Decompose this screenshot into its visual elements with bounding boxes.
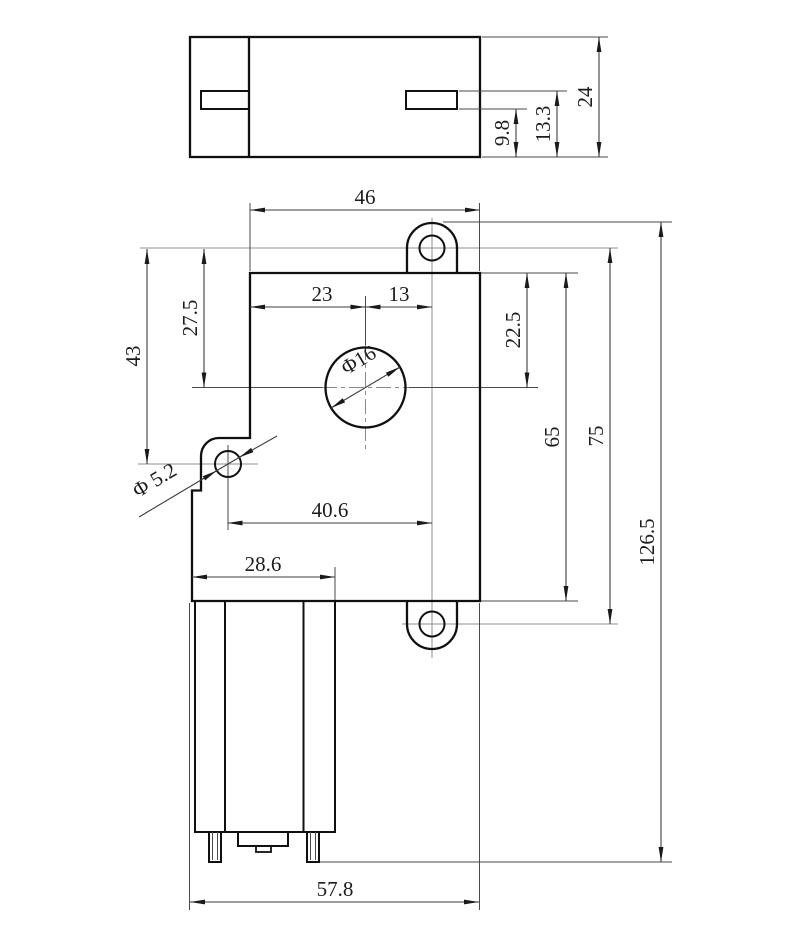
- dim-left-ear-offset-label: 43: [121, 346, 145, 367]
- dim-shaft-offset-right-label: 22.5: [501, 312, 525, 349]
- background: [0, 0, 800, 950]
- dim-body-width-label: 46: [355, 185, 376, 209]
- dim-shaft-offset-left-label: 23: [312, 282, 333, 306]
- drawing-canvas: 9.8 13.3 24: [0, 0, 800, 950]
- dim-slot-bottom-label: 9.8: [490, 120, 514, 146]
- dim-shaft-to-ear-label: 13: [389, 282, 410, 306]
- dim-ear-span-label: 75: [584, 426, 608, 447]
- dim-ear-to-ear-label: 40.6: [312, 498, 349, 522]
- dim-overall-width-label: 57.8: [317, 877, 354, 901]
- engineering-drawing: 9.8 13.3 24: [0, 0, 800, 950]
- dim-shaft-offset-top-label: 27.5: [178, 300, 202, 337]
- dim-top-height-label: 24: [573, 86, 597, 108]
- dim-slot-top-label: 13.3: [531, 106, 555, 143]
- dim-motor-width-label: 28.6: [245, 552, 282, 576]
- dim-overall-height-label: 126.5: [635, 518, 659, 565]
- dim-body-height-label: 65: [540, 427, 564, 448]
